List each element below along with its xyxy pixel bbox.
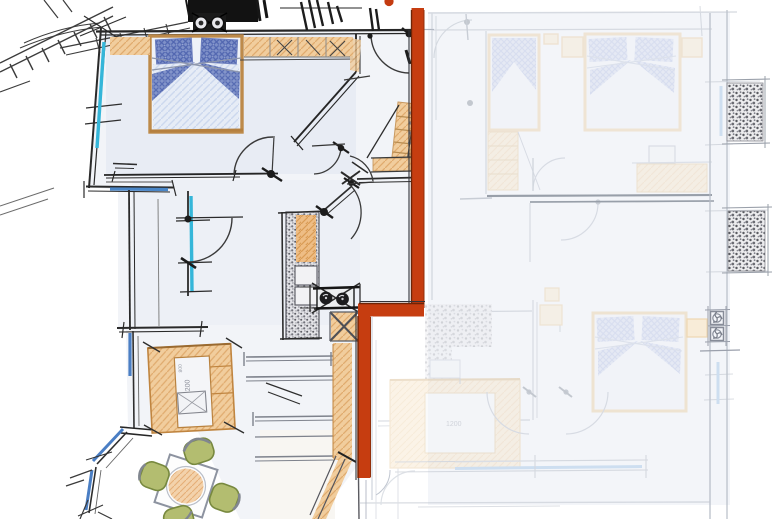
svg-text:800: 800 [178,364,184,373]
svg-text:1200: 1200 [446,421,462,428]
